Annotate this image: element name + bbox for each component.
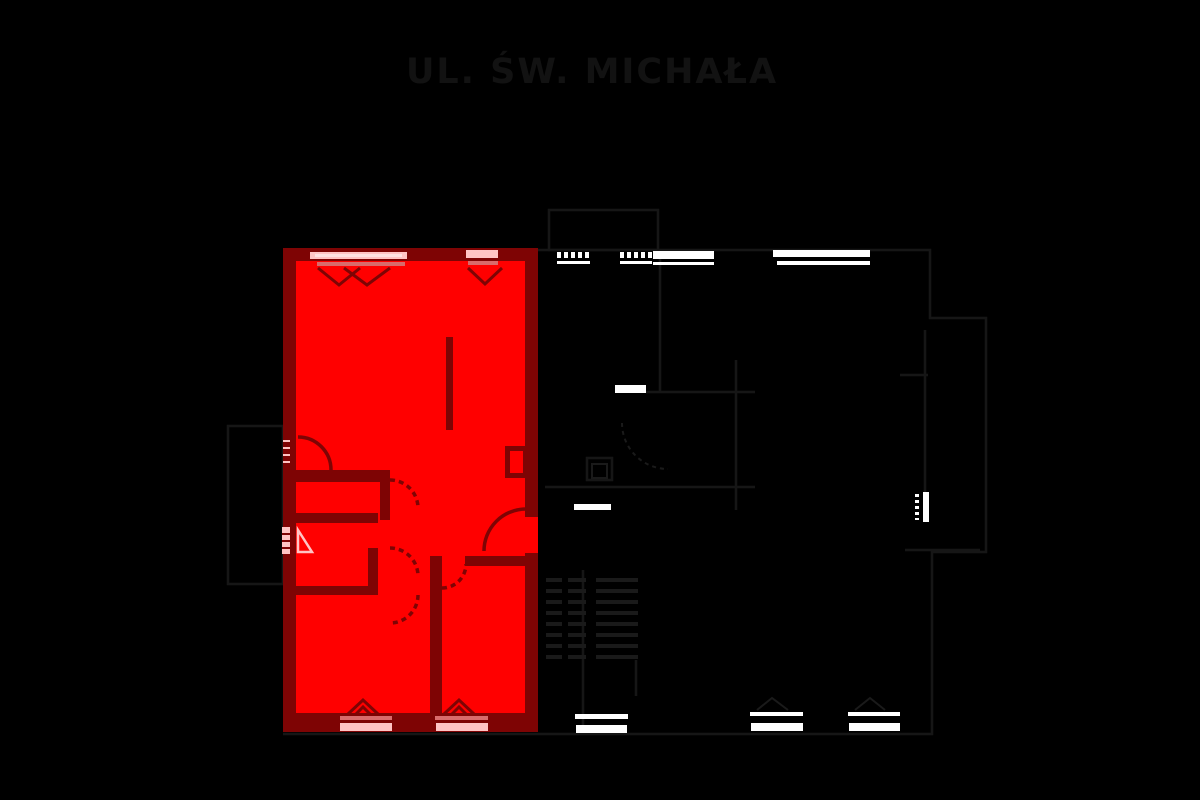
bottom-window xyxy=(750,712,803,716)
stair-landing-edge xyxy=(574,504,611,510)
interior-wall xyxy=(900,330,980,550)
left-balcony xyxy=(228,426,283,584)
duct-shaft xyxy=(587,458,612,480)
living-room-partition-stub xyxy=(446,337,453,430)
stair-treads xyxy=(546,578,638,659)
interior-opening xyxy=(615,385,646,393)
floorplan-canvas xyxy=(0,0,1200,800)
top-window xyxy=(653,251,714,259)
bottom-window-2 xyxy=(435,716,488,720)
wall-niche-inner xyxy=(510,451,523,473)
top-window xyxy=(773,250,870,257)
right-door-opening xyxy=(524,517,538,553)
highlighted-unit[interactable] xyxy=(282,248,538,732)
bottom-window-1 xyxy=(340,716,392,720)
window-opening-mark xyxy=(757,698,788,710)
top-balcony xyxy=(549,210,658,250)
duct-shaft-inner xyxy=(592,464,607,478)
window-opening-mark xyxy=(855,698,885,710)
staircase xyxy=(546,578,638,659)
bottom-window xyxy=(575,714,628,719)
neighbor-windows xyxy=(557,250,929,733)
bottom-window xyxy=(848,712,900,716)
neighbor-door-arc xyxy=(622,423,668,469)
top-window-2 xyxy=(466,250,498,258)
